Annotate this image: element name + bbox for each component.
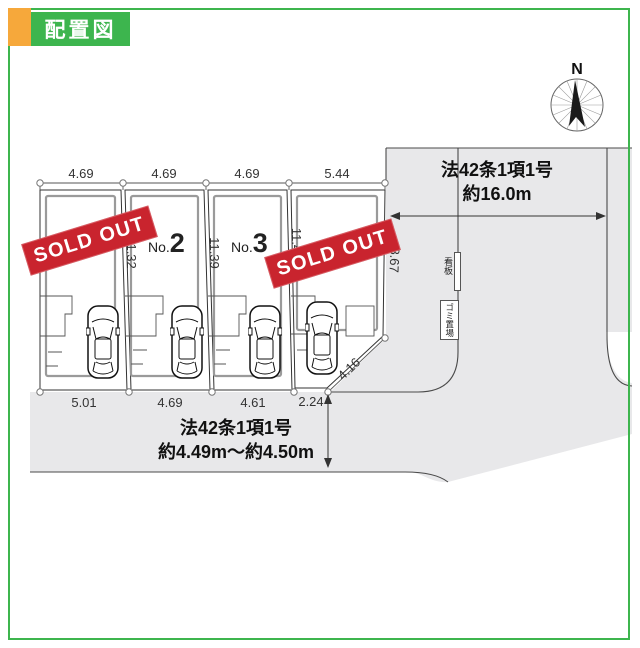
page-border-frame bbox=[8, 8, 630, 640]
header-accent-block bbox=[8, 8, 31, 46]
page-title: 配置図 bbox=[31, 12, 130, 46]
site-plan-page: 4.69 4.69 4.69 5.44 5.01 4.69 4.61 2.24 … bbox=[0, 0, 640, 648]
